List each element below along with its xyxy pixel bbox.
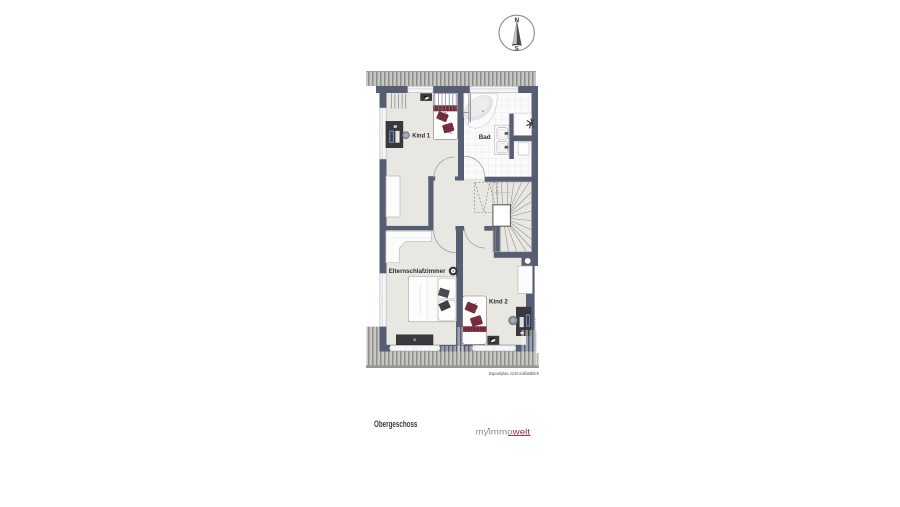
svg-text:Bad: Bad	[479, 134, 491, 141]
svg-text:Elternschlafzimmer: Elternschlafzimmer	[389, 268, 446, 275]
svg-text:Kind 1: Kind 1	[412, 133, 430, 140]
svg-text:Kind 2: Kind 2	[489, 299, 508, 306]
svg-text:myimmowelt: myimmowelt	[476, 426, 531, 436]
svg-text:N: N	[514, 17, 519, 24]
svg-text:myimmowelt Exposeplan: myimmowelt Exposeplan	[533, 317, 537, 346]
svg-text:S: S	[515, 45, 520, 52]
svg-text:Exposéplan, nicht maßstäblich: Exposéplan, nicht maßstäblich	[489, 371, 539, 376]
svg-text:Obergeschoss: Obergeschoss	[374, 419, 417, 429]
